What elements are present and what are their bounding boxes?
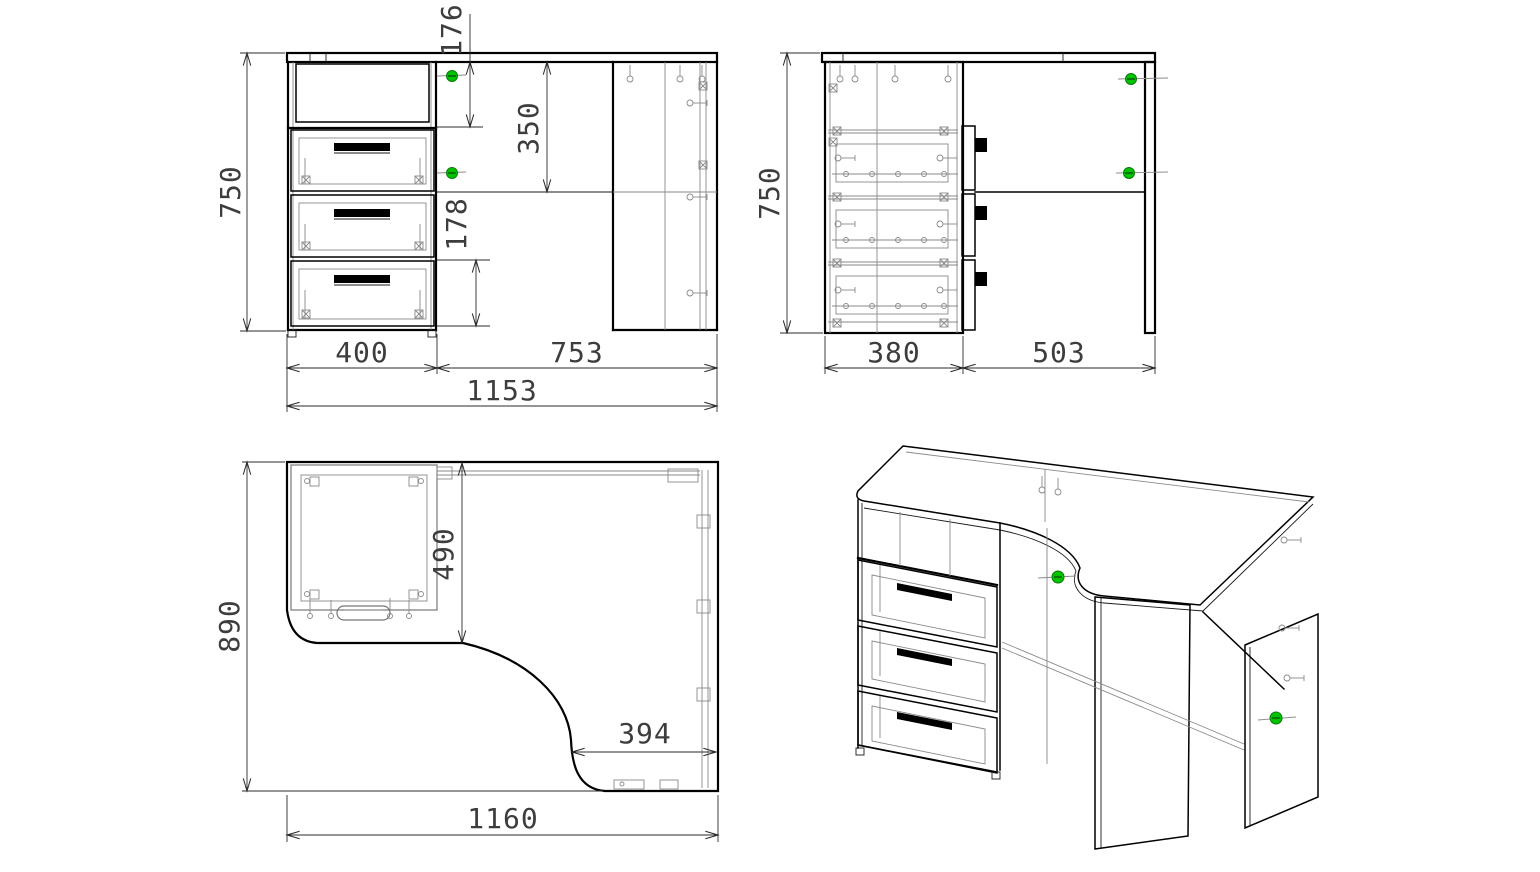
dim-plan-depth: 890 [213, 599, 246, 653]
drawer-cabinet-iso [856, 500, 1000, 779]
drawer-handle [975, 138, 987, 152]
drawer-slides [828, 127, 958, 327]
side-view: 750 380 503 [753, 53, 1168, 374]
dim-plan-cabinet-zone: 490 [427, 527, 460, 581]
drawer-handle-plan [337, 606, 390, 620]
drawer-handle [897, 648, 952, 666]
right-leg-panel-iso [1203, 537, 1318, 828]
dim-front-drawer: 178 [440, 197, 473, 251]
dim-plan-total-width: 1160 [467, 802, 538, 835]
desktop-iso [857, 446, 1313, 605]
drawing-sheet: 750 176 350 178 400 753 1153 [0, 0, 1540, 872]
open-compartment [296, 64, 429, 122]
dim-front-total-width: 1153 [466, 374, 537, 407]
isometric-view [856, 446, 1318, 849]
drawer-cabinet-plan [291, 465, 437, 620]
drawer-cabinet-side [825, 62, 963, 333]
drawer-cabinet-front [288, 62, 436, 337]
dim-front-knee-span: 753 [550, 336, 604, 369]
dim-side-height: 750 [753, 166, 786, 220]
side-dimensions: 750 380 503 [753, 53, 1155, 374]
leg-panel-edge [1145, 62, 1155, 333]
dim-front-cabinet-width: 400 [335, 336, 389, 369]
cam-fastener-icon [1118, 74, 1168, 85]
center-leg-panel-iso [1095, 597, 1190, 849]
drawer-1 [291, 130, 434, 191]
drawer-3 [291, 261, 434, 326]
plan-dimensions: 890 490 394 1160 [213, 462, 718, 842]
cam-fastener-icon [1116, 168, 1168, 179]
front-view: 750 176 350 178 400 753 1153 [214, 3, 717, 412]
drawer-2 [291, 195, 434, 257]
drawer-handle [975, 272, 987, 286]
drawer-handle [334, 143, 390, 151]
dim-front-top-compartment: 176 [435, 3, 468, 57]
drawer-handle [334, 209, 390, 217]
dim-front-height: 750 [214, 165, 247, 219]
front-dimensions: 750 176 350 178 400 753 1153 [214, 3, 717, 412]
cam-fastener-icon [437, 71, 466, 82]
plan-view: 890 490 394 1160 [213, 462, 718, 842]
foot [856, 748, 864, 755]
drawer-handle [334, 275, 390, 283]
cam-fastener-icon [1258, 712, 1296, 724]
drawer-handle [975, 206, 987, 220]
drawer-fronts-side [962, 126, 987, 330]
dim-side-knee-span: 503 [1032, 336, 1086, 369]
dim-side-cabinet-depth: 380 [867, 336, 921, 369]
desktop-front [287, 53, 717, 62]
desktop-side [822, 53, 1155, 62]
dim-front-apron: 350 [512, 101, 545, 155]
cam-fastener-icon [1038, 571, 1076, 583]
dim-plan-side-edge: 394 [618, 717, 672, 750]
cam-fastener-icon [437, 168, 466, 179]
leg-panel-front [613, 62, 717, 330]
